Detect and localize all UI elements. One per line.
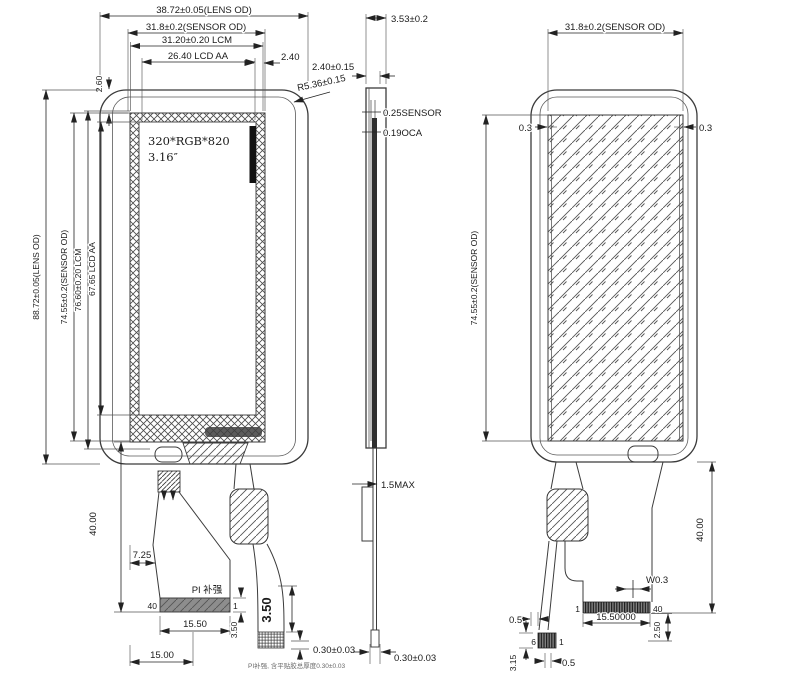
connector-side <box>371 630 379 647</box>
bottom-dark-bar <box>205 427 262 437</box>
pin-1-label: 1 <box>233 601 238 611</box>
pi-note: PI补强, 含平贴胶总厚度0.30±0.03 <box>248 661 346 670</box>
lcm-height-label: 76.60±0.20 LCM <box>73 249 83 312</box>
right-gap-label: 2.40 <box>281 52 300 63</box>
pi-thickness-label: 3.50 <box>229 621 239 638</box>
bonding-area <box>183 443 248 464</box>
lens-od-width-label: 38.72±0.05(LENS OD) <box>156 5 252 16</box>
sensor-thickness-label: 0.25SENSOR <box>383 108 442 119</box>
lcd-module-technical-drawing: 320*RGB*820 3.16″ 38.72±0.05(LENS OD) 31… <box>0 0 800 696</box>
back-pin-40-label: 40 <box>653 604 663 614</box>
active-area <box>139 122 256 415</box>
adhesive-thickness-label: 0.30±0.03 <box>313 645 355 656</box>
screen-resolution-label: 320*RGB*820 <box>148 134 230 148</box>
fpc-neck <box>158 471 180 492</box>
margin-right-label: 0.3 <box>699 123 712 134</box>
small-pin-6-label: 6 <box>531 637 536 647</box>
lcd-aa-height-label: 67.65 LCD AA <box>87 242 97 296</box>
fpc-thickness-label: 0.30±0.03 <box>394 653 436 664</box>
back-tail-length-label: 40.00 <box>695 518 706 542</box>
back-sensor-height-label: 74.55±0.2(SENSOR OD) <box>469 231 479 326</box>
connector-end <box>258 632 284 648</box>
tail-offset-label: 7.25 <box>133 550 152 561</box>
lcm-width-label: 31.20±0.20 LCM <box>162 35 232 46</box>
black-strip <box>250 126 257 183</box>
small-pin-1-label: 1 <box>559 637 564 647</box>
back-stiffener-pad <box>547 489 588 541</box>
connector-width-label: 15.50000 <box>596 612 636 623</box>
connector-offset-label: 2.50 <box>652 621 662 638</box>
drawing-canvas: 320*RGB*820 3.16″ 38.72±0.05(LENS OD) 31… <box>0 0 800 696</box>
screen-size-label: 3.16″ <box>148 150 179 164</box>
pi-width-label: 15.50 <box>183 619 207 630</box>
back-sensor-area <box>548 115 683 441</box>
small-height-label: 3.15 <box>508 654 518 671</box>
sensor-od-height-label: 74.55±0.2(SENSOR OD) <box>59 230 69 325</box>
sensor-od-width-label: 31.8±0.2(SENSOR OD) <box>146 22 246 33</box>
lens-od-height-label: 88.72±0.05(LENS OD) <box>31 234 41 320</box>
tail-length-label: 40.00 <box>88 512 99 536</box>
lens-thickness-label: 2.40±0.15 <box>312 62 354 73</box>
total-thickness-label: 3.53±0.2 <box>391 14 428 25</box>
pin-40-label: 40 <box>148 601 158 611</box>
back-pin-1-label: 1 <box>575 604 580 614</box>
pi-stiffener-hatch <box>160 598 230 612</box>
oca-thickness-label: 0.19OCA <box>383 128 423 139</box>
pi-offset-label: 15.00 <box>150 650 174 661</box>
back-sensor-width-label: 31.8±0.2(SENSOR OD) <box>565 22 665 33</box>
lcm-stack <box>372 118 377 448</box>
stiffener-pad <box>230 489 268 544</box>
small-connector-pins <box>538 633 556 648</box>
fpc-max-label: 1.5MAX <box>381 480 415 491</box>
margin-left-label: 0.3 <box>519 123 532 134</box>
pi-reinforce-label: PI 补强 <box>192 584 223 596</box>
lcd-aa-width-label: 26.40 LCD AA <box>168 51 229 62</box>
gap-a-label: 0.5 <box>509 615 522 626</box>
gap-b-label: 0.5 <box>562 658 575 669</box>
tail-thickness-label: 3.50 <box>259 597 274 622</box>
trace-width-label: W0.3 <box>646 575 668 586</box>
